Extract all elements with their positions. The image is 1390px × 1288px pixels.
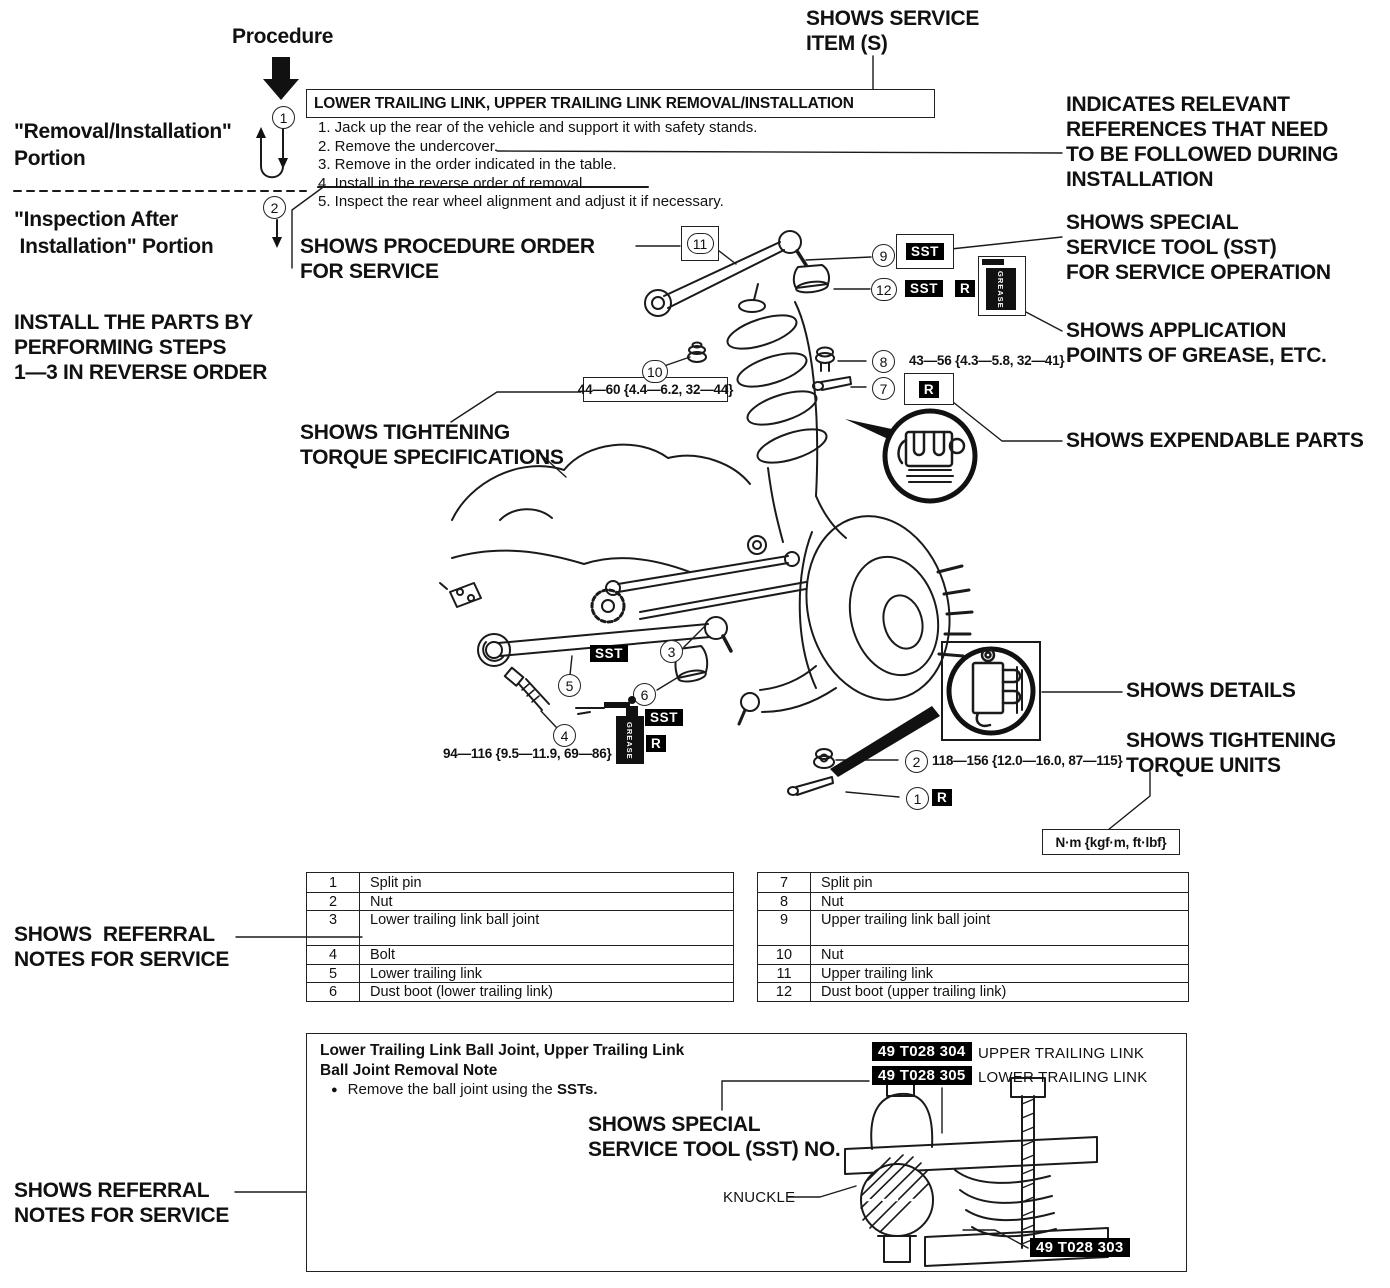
shows-referral-top-label: SHOWS REFERRAL NOTES FOR SERVICE xyxy=(14,922,229,972)
torque-units-value: N·m {kgf·m, ft·lbf} xyxy=(1056,835,1167,850)
procedure-title-box: LOWER TRAILING LINK, UPPER TRAILING LINK… xyxy=(306,89,935,118)
part-name: Lower trailing link ball joint xyxy=(360,911,539,928)
bullet-bold-text: SSTs. xyxy=(557,1081,598,1098)
part-name: Dust boot (upper trailing link) xyxy=(811,984,1006,1000)
removal-note-title: Lower Trailing Link Ball Joint, Upper Tr… xyxy=(320,1041,684,1080)
grease-can-ball xyxy=(628,696,636,704)
procedure-step: 1. Jack up the rear of the vehicle and s… xyxy=(318,119,757,138)
shows-referral-bottom-label: SHOWS REFERRAL NOTES FOR SERVICE xyxy=(14,1178,229,1228)
table-row: 2Nut xyxy=(307,893,733,911)
knuckle-label: KNUCKLE xyxy=(723,1189,795,1206)
service-manual-legend-page: Procedure SHOWS SERVICE ITEM (S) "Remova… xyxy=(0,0,1390,1288)
part-callout-2: 2 xyxy=(905,750,928,773)
indicates-references-label: INDICATES RELEVANT REFERENCES THAT NEED … xyxy=(1066,92,1338,192)
part-name: Nut xyxy=(811,894,844,910)
sst-badge: SST xyxy=(905,280,943,297)
step-callout-2: 2 xyxy=(263,196,286,219)
expendable-r-badge: R xyxy=(919,381,939,398)
torque-value: 44—60 {4.4—6.2, 32—44} xyxy=(578,382,733,397)
procedure-step: 3. Remove in the order indicated in the … xyxy=(318,156,757,175)
bullet-icon: ● xyxy=(331,1081,338,1099)
inspection-portion-label: "Inspection After Installation" Portion xyxy=(14,206,213,260)
r-badge-box-7: R xyxy=(904,373,954,405)
part-name: Nut xyxy=(811,947,844,963)
table-row: 11Upper trailing link xyxy=(758,965,1188,983)
part-callout-12: 12 xyxy=(871,278,897,301)
table-row: 5Lower trailing link xyxy=(307,965,733,983)
part-no: 11 xyxy=(758,965,811,982)
sst-code-305-label: LOWER TRAILING LINK xyxy=(978,1069,1147,1086)
part-no: 2 xyxy=(307,893,360,910)
part-callout-7: 7 xyxy=(872,377,895,400)
part-no: 5 xyxy=(307,965,360,982)
part-callout-3: 3 xyxy=(660,640,683,663)
shows-details-label: SHOWS DETAILS xyxy=(1126,678,1296,703)
shows-service-item-label: SHOWS SERVICE ITEM (S) xyxy=(806,6,979,56)
part-name: Upper trailing link xyxy=(811,966,933,982)
suspension-sketch xyxy=(440,231,972,795)
part-no: 7 xyxy=(758,873,811,892)
part-no: 4 xyxy=(307,946,360,964)
step-callout-1: 1 xyxy=(272,106,295,129)
part-name: Lower trailing link xyxy=(360,966,482,982)
part-callout-10: 10 xyxy=(642,360,668,383)
part-no: 12 xyxy=(758,983,811,1001)
table-row: 8Nut xyxy=(758,893,1188,911)
sst-code-303: 49 T028 303 xyxy=(1030,1238,1130,1257)
procedure-step: 2. Remove the undercover. xyxy=(318,138,757,157)
part-name: Split pin xyxy=(811,875,873,891)
sst-code-304-label: UPPER TRAILING LINK xyxy=(978,1045,1144,1062)
table-row: 3Lower trailing link ball joint xyxy=(307,911,733,946)
part-callout-9: 9 xyxy=(872,244,895,267)
part-name: Nut xyxy=(360,894,393,910)
table-row: 12Dust boot (upper trailing link) xyxy=(758,983,1188,1001)
part-name: Upper trailing link ball joint xyxy=(811,911,990,928)
table-row: 1Split pin xyxy=(307,873,733,893)
shows-grease-points-label: SHOWS APPLICATION POINTS OF GREASE, ETC. xyxy=(1066,318,1327,368)
expendable-r-badge: R xyxy=(646,735,666,752)
part-no: 6 xyxy=(307,983,360,1001)
part-callout-1: 1 xyxy=(906,787,929,810)
part-callout-4: 4 xyxy=(553,724,576,747)
part-name: Dust boot (lower trailing link) xyxy=(360,984,553,1000)
procedure-step: 5. Inspect the rear wheel alignment and … xyxy=(318,193,757,212)
part-no: 3 xyxy=(307,911,360,945)
grease-can-nozzle xyxy=(604,702,630,708)
torque-lower-link: 94—116 {9.5—11.9, 69—86} xyxy=(443,746,612,761)
procedure-step: 4. Install in the reverse order of remov… xyxy=(318,175,757,194)
shows-sst-label: SHOWS SPECIAL SERVICE TOOL (SST) FOR SER… xyxy=(1066,210,1331,285)
sst-badge: SST xyxy=(906,243,944,260)
torque-lower-ball: 118—156 {12.0—16.0, 87—115} xyxy=(932,753,1123,768)
table-row: 10Nut xyxy=(758,946,1188,965)
procedure-steps: 1. Jack up the rear of the vehicle and s… xyxy=(318,119,757,212)
parts-table-upper: 7Split pin 8Nut 9Upper trailing link bal… xyxy=(757,872,1189,1002)
parts-table-lower: 1Split pin 2Nut 3Lower trailing link bal… xyxy=(306,872,734,1002)
grease-can-label: GREASE xyxy=(996,271,1005,309)
table-row: 7Split pin xyxy=(758,873,1188,893)
grease-can-label: GREASE xyxy=(625,720,634,762)
part-callout-5: 5 xyxy=(558,674,581,697)
part-callout-6: 6 xyxy=(633,683,656,706)
procedure-title: LOWER TRAILING LINK, UPPER TRAILING LINK… xyxy=(307,95,854,113)
shows-procedure-order-label: SHOWS PROCEDURE ORDER FOR SERVICE xyxy=(300,234,595,284)
removal-portion-label: "Removal/Installation" Portion xyxy=(14,118,232,172)
sst-code-304: 49 T028 304 xyxy=(872,1042,972,1061)
removal-note-bullet: ● Remove the ball joint using the SSTs. xyxy=(331,1081,598,1099)
sst-badge-box-9: SST xyxy=(896,234,954,269)
part-name: Split pin xyxy=(360,875,422,891)
bullet-text: Remove the ball joint using the SSTs. xyxy=(348,1081,598,1099)
part-no: 8 xyxy=(758,893,811,910)
down-arrow-icon xyxy=(263,57,299,100)
sst-badge: SST xyxy=(645,709,683,726)
grease-detail-circle xyxy=(845,411,975,501)
part-no: 1 xyxy=(307,873,360,892)
sst-code-305: 49 T028 305 xyxy=(872,1066,972,1085)
procedure-label: Procedure xyxy=(232,24,333,49)
expendable-r-badge: R xyxy=(955,280,975,297)
table-row: 9Upper trailing link ball joint xyxy=(758,911,1188,946)
cycle-arrow-icon xyxy=(261,128,283,237)
shows-torque-units-label: SHOWS TIGHTENING TORQUE UNITS xyxy=(1126,728,1336,778)
install-reverse-label: INSTALL THE PARTS BY PERFORMING STEPS 1—… xyxy=(14,310,267,385)
torque-upper-ball: 43—56 {4.3—5.8, 32—41} xyxy=(909,353,1064,368)
part-name: Bolt xyxy=(360,947,395,963)
table-row: 4Bolt xyxy=(307,946,733,965)
grease-can-nozzle xyxy=(982,259,1004,265)
part-callout-11: 11 xyxy=(687,233,714,254)
shows-torque-specs-label: SHOWS TIGHTENING TORQUE SPECIFICATIONS xyxy=(300,420,564,470)
torque-units-box: N·m {kgf·m, ft·lbf} xyxy=(1042,829,1180,855)
part-callout-8: 8 xyxy=(872,350,895,373)
table-row: 6Dust boot (lower trailing link) xyxy=(307,983,733,1001)
sst-badge: SST xyxy=(590,645,628,662)
part-no: 9 xyxy=(758,911,811,945)
expendable-r-badge: R xyxy=(932,789,952,806)
part-callout-11-box: 11 xyxy=(681,226,719,261)
shows-expendable-label: SHOWS EXPENDABLE PARTS xyxy=(1066,428,1364,453)
part-no: 10 xyxy=(758,946,811,964)
